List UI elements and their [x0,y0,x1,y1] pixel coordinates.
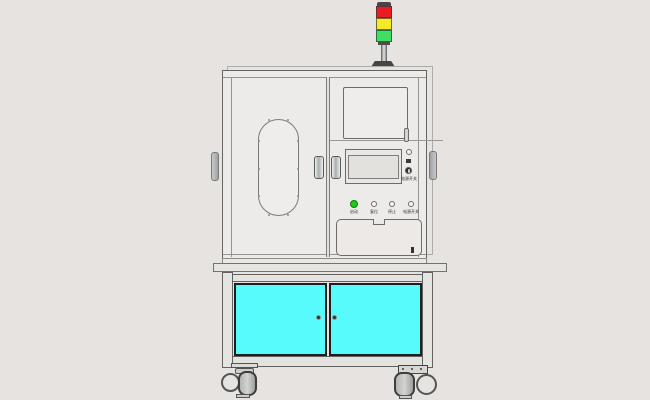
display-window-handle [404,128,409,142]
side-handle-left [211,152,219,181]
window-screw-icon [287,214,289,216]
caster-wheel-icon [394,372,415,397]
window-screw-icon [268,214,270,216]
window-screw-icon [297,168,299,170]
bolt-icon [411,368,413,370]
caster-foot-pad [399,395,412,399]
machine-render: 电源开关 启动 复位 停止 电源开关 [0,0,650,400]
door-knob-left [316,315,321,320]
caster-right [392,361,440,399]
window-screw-icon [287,119,289,121]
caster-foot-pad [236,394,250,398]
left-door-window [258,119,299,216]
cart-post-left [222,272,233,368]
power-indicator-lamp [406,149,412,155]
stop-button [389,201,395,207]
start-button-label: 启动 [346,210,362,214]
caster-wheel-icon [238,371,257,396]
drawer-notch-handle [373,219,385,225]
right-section-divider [330,140,443,141]
touch-screen-frame [345,149,402,184]
window-screw-icon [297,140,299,142]
display-window [343,87,408,139]
stop-button-label: 停止 [384,210,400,214]
cart-door-right [329,283,422,356]
cart-door-left [234,283,327,356]
cart-post-right [422,272,433,368]
bolt-icon [402,368,404,370]
power-button [408,201,414,207]
reset-button-label: 复位 [366,210,382,214]
upper-cabinet: 电源开关 启动 复位 停止 电源开关 [222,70,427,259]
selector-switch-icon [406,159,411,163]
keyboard-drawer [336,219,422,256]
window-screw-icon [258,140,260,142]
lower-cart [222,271,433,368]
left-door [232,78,326,257]
red-lamp-icon [376,6,392,18]
touch-screen [348,155,399,179]
tower-light [370,2,396,68]
power-switch-label: 电源开关 [397,177,421,181]
bolt-icon [420,368,422,370]
window-screw-icon [258,168,260,170]
window-screw-icon [268,119,270,121]
window-screw-icon [258,195,260,197]
door-knob-right [332,315,337,320]
left-door-handle [314,156,324,179]
tower-light-pole [381,45,387,62]
yellow-lamp-icon [376,18,392,30]
start-button [350,200,358,208]
leveling-foot-right-icon [416,374,437,395]
green-lamp-icon [376,30,392,42]
window-screw-icon [297,195,299,197]
cart-top-rail [232,274,423,282]
reset-button [371,201,377,207]
caster-left [219,361,264,399]
side-handle-right [429,151,437,180]
drawer-lock-icon [411,247,414,253]
right-section: 电源开关 启动 复位 停止 电源开关 [330,78,443,257]
power-button-label: 电源开关 [399,210,423,214]
key-switch-icon [405,167,412,174]
